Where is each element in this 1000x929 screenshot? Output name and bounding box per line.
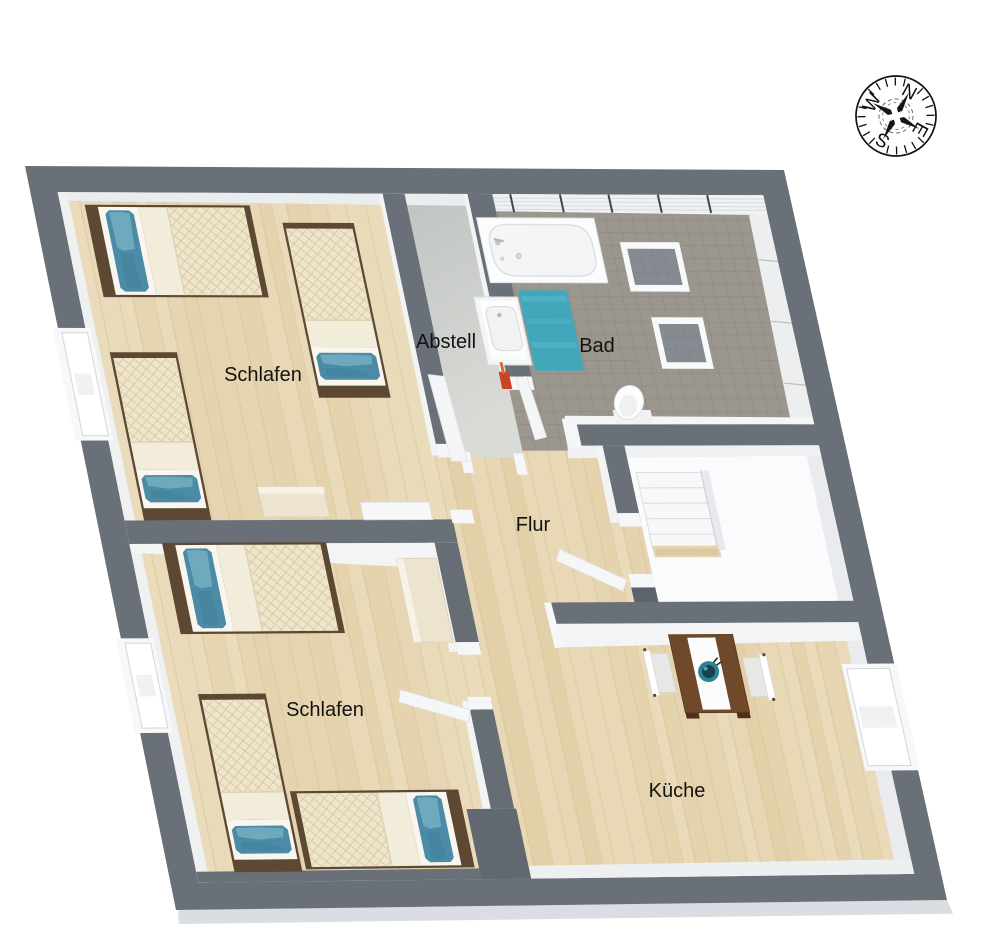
svg-text:Flur: Flur bbox=[516, 514, 551, 536]
svg-text:Schlafen: Schlafen bbox=[224, 364, 302, 386]
svg-text:Schlafen: Schlafen bbox=[286, 699, 364, 721]
svg-text:Abstell: Abstell bbox=[416, 331, 476, 353]
svg-text:Küche: Küche bbox=[649, 780, 706, 802]
svg-text:Bad: Bad bbox=[579, 335, 615, 357]
